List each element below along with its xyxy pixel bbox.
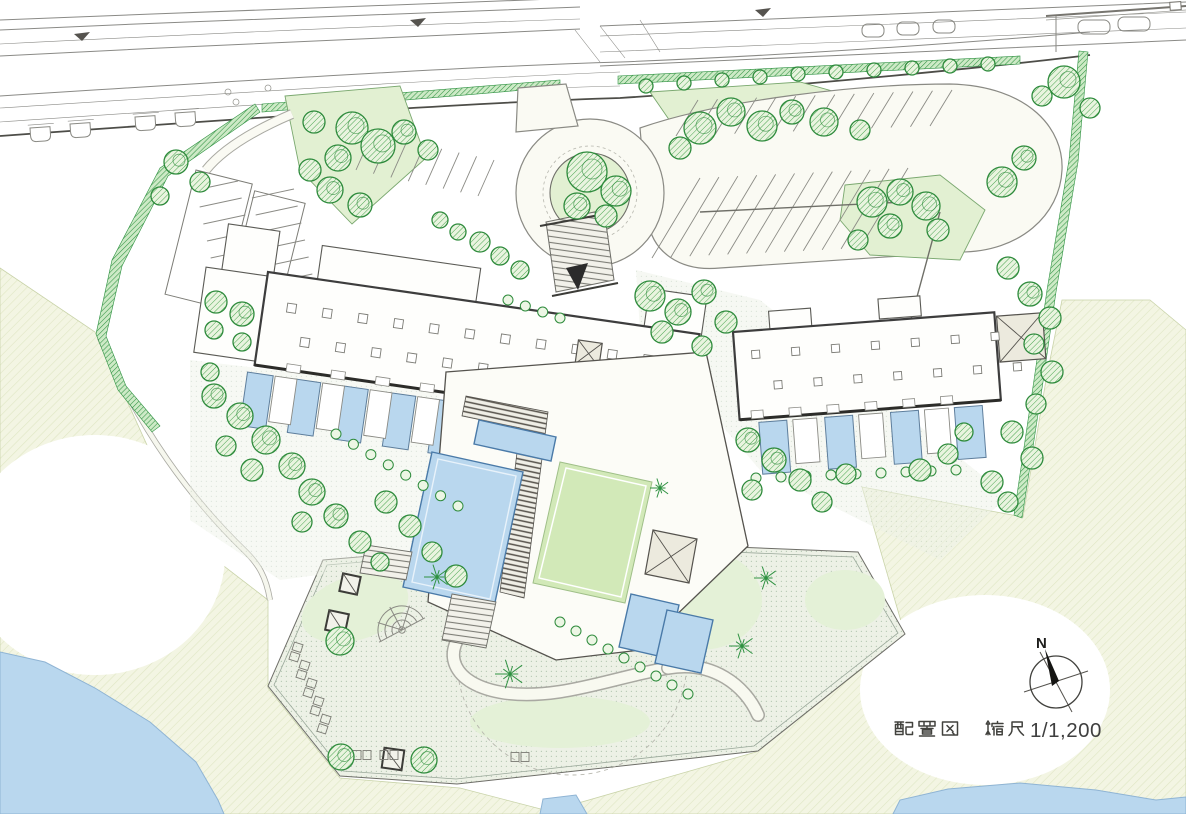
- caption-scale-number: 1/1,200: [1030, 719, 1102, 742]
- site-plan-drawing: N 配置図 縮尺1/1,200 1/1,200: [0, 0, 1186, 814]
- site-plan-page: N 配置図 縮尺1/1,200 1/1,200: [0, 0, 1186, 814]
- north-label: N: [1036, 635, 1047, 652]
- south-steps: [442, 594, 496, 648]
